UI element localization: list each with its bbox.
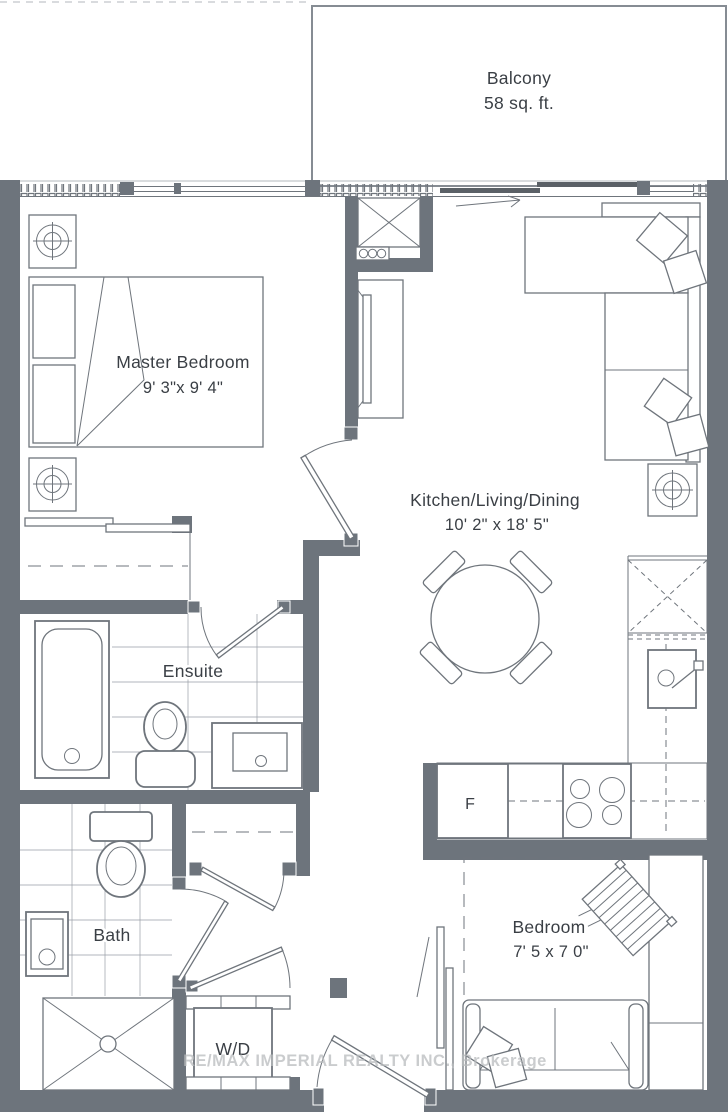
bath-door	[177, 889, 228, 982]
master-bedroom-door	[301, 440, 354, 539]
floor-plan-svg: Balcony 58 sq. ft. Master Bedroom 9' 3"x…	[0, 0, 728, 1117]
sofa-bed	[463, 1000, 648, 1090]
balcony-area: 58 sq. ft.	[484, 93, 554, 113]
master-closet	[25, 518, 190, 600]
tv-console	[357, 280, 403, 418]
kitchen-living-dining-dims: 10' 2" x 18' 5"	[445, 516, 549, 534]
balcony-label: Balcony	[487, 68, 551, 88]
bath-label: Bath	[93, 925, 130, 945]
ensuite-toilet	[136, 702, 195, 787]
bath-toilet	[90, 812, 152, 897]
ceiling-light	[29, 458, 76, 511]
bath-sink	[26, 912, 68, 976]
ensuite-door	[201, 605, 284, 658]
hall-closet	[192, 832, 294, 911]
shower	[43, 998, 174, 1090]
ensuite-label: Ensuite	[163, 661, 223, 681]
kitchen-sink	[648, 650, 703, 708]
master-bedroom-label: Master Bedroom	[116, 352, 250, 372]
bedroom-dims: 7' 5 x 7 0"	[513, 943, 589, 961]
mechanical-shaft	[356, 198, 420, 260]
watermark-text: RE/MAX IMPERIAL REALTY INC., Brokerage	[183, 1052, 547, 1070]
kitchen-living-dining-label: Kitchen/Living/Dining	[410, 490, 580, 510]
dining-table	[419, 550, 553, 685]
fridge-label: F	[465, 796, 475, 813]
bedroom-label: Bedroom	[512, 917, 585, 937]
ensuite-vanity-sink	[212, 723, 302, 788]
laundry-door	[189, 947, 290, 990]
ensuite-bathtub	[35, 621, 109, 778]
master-bedroom-dims: 9' 3"x 9' 4"	[143, 379, 223, 397]
ceiling-light	[648, 464, 697, 516]
ceiling-light	[29, 215, 76, 268]
sofa	[525, 203, 709, 462]
floor-plan: Balcony 58 sq. ft. Master Bedroom 9' 3"x…	[0, 0, 728, 1117]
stove	[563, 764, 631, 838]
wardrobe	[649, 855, 703, 1090]
